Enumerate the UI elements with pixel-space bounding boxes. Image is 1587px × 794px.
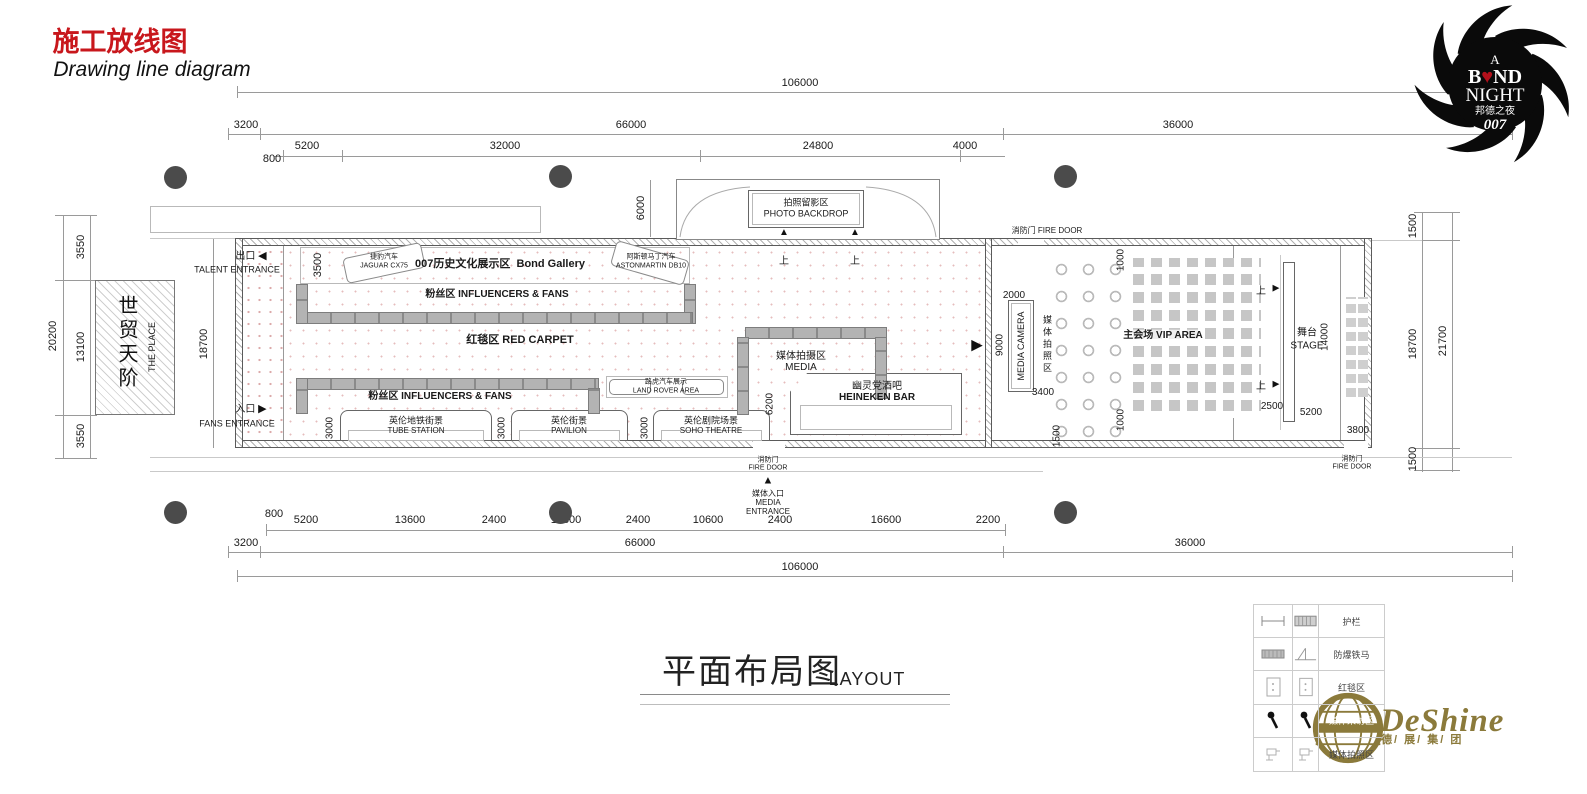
dim-line (63, 215, 64, 458)
legend-icon-camera-1 (1254, 738, 1293, 771)
dim-tick (1512, 570, 1513, 582)
pavilion-label-cn: 英伦街景 (551, 415, 587, 426)
dim-top-5200: 5200 (295, 140, 319, 154)
fans-label-cn: 粉丝区 (368, 391, 398, 402)
bond-gallery-label-cn: 007历史文化展示区 (415, 258, 510, 270)
dim-top-total: 106000 (782, 77, 819, 91)
dim-tick (55, 215, 97, 216)
media-camera-label-en: MEDIA CAMERA (1016, 311, 1026, 380)
dim-bot-5200: 5200 (294, 514, 318, 528)
land-rover-label-en: LAND ROVER AREA (633, 387, 699, 394)
dim-tick (237, 86, 238, 98)
dim-right-21700: 21700 (1437, 326, 1449, 357)
dim-bot-16600: 16600 (871, 514, 902, 528)
dim-3000: 3000 (640, 417, 651, 439)
column-dot (164, 166, 187, 189)
page-title-cn: 施工放线图 (53, 26, 188, 60)
dim-bot-total: 106000 (782, 561, 819, 575)
legend-label-red-carpet: 红毯区 (1319, 671, 1384, 704)
bond-night-logo: A B♥ND NIGHT 邦德之夜 007 (1393, 0, 1587, 185)
dim-bot-2400: 2400 (482, 514, 506, 528)
photo-backdrop-label-en: PHOTO BACKDROP (764, 208, 849, 219)
media-entrance-gap (753, 441, 785, 448)
dim-top-66000: 66000 (616, 119, 647, 133)
barrier (588, 388, 600, 414)
dim-tick (1005, 524, 1006, 536)
fans-entry-label-cn: 入口 ▶ (235, 404, 266, 417)
dim-tick (260, 546, 261, 558)
fire-door-bottom-label-en: FIRE DOOR (749, 465, 788, 474)
dim-tick (266, 524, 267, 536)
dim-9000: 9000 (995, 334, 1006, 356)
dim-line (228, 552, 1512, 553)
legend-icon-barricade-elev (1293, 638, 1319, 671)
fire-door-gap (1344, 441, 1368, 448)
page-title-en: Drawing line diagram (53, 57, 250, 83)
barrier (307, 378, 599, 390)
legend-icon-camera-2 (1293, 738, 1319, 771)
barrier (737, 337, 749, 415)
dim-3800: 3800 (1347, 425, 1369, 438)
jaguar-label-cn: 捷豹汽车 (370, 253, 398, 260)
land-rover-label: 路虎汽车展示 LAND ROVER AREA (633, 378, 699, 396)
drawing-canvas: 施工放线图 Drawing line diagram A B♥ND NIGHT … (0, 0, 1587, 794)
dim-3000: 3000 (325, 417, 336, 439)
dim-line (237, 92, 1512, 93)
dim-5200: 5200 (1300, 407, 1322, 420)
dim-top-3200: 3200 (234, 119, 258, 133)
barrier (307, 312, 693, 324)
logo-cn: 邦德之夜 (1475, 104, 1515, 117)
bond-gallery-label: 007历史文化展示区 Bond Gallery (415, 258, 585, 272)
mall-outline-top (150, 206, 541, 233)
red-carpet-label: 红毯区 RED CARPET (466, 334, 574, 348)
up-arrow-icon: ▲ (779, 228, 789, 238)
legend-icon-rail-elev (1293, 605, 1319, 638)
dim-3500: 3500 (312, 253, 324, 277)
column-dot (164, 501, 187, 524)
dim-top-32000: 32000 (490, 140, 521, 154)
up-arrow-icon: ▲ (850, 228, 860, 238)
brand-cn: 德/ 展/ 集/ 团 (1381, 731, 1463, 747)
stair-up-label: 上 (850, 256, 860, 269)
media-entrance-arrow-icon: ▲ (763, 476, 774, 487)
dim-bot-800: 800 (265, 508, 283, 522)
logo-night: NIGHT (1465, 85, 1524, 106)
dim-right-18700: 18700 (1407, 329, 1419, 360)
legend-icon-mic-2 (1293, 705, 1319, 738)
mall-line (150, 238, 235, 239)
dim-1500: 1500 (1052, 425, 1063, 447)
fans-entry-label-en: FANS ENTRANCE (199, 418, 275, 429)
dim-bot-3200: 3200 (234, 537, 258, 551)
stage-label-cn: 舞台 (1297, 328, 1317, 339)
legend-icon-rail-plan (1254, 605, 1293, 638)
plan-partition-stage-right (1340, 246, 1341, 440)
layout-title-en: LAYOUT (829, 668, 906, 691)
legend-label-media-photo: 媒体拍照区 (1319, 738, 1384, 771)
dim-tick (283, 150, 284, 162)
vip-label-cn: 主会场 (1123, 330, 1153, 341)
column-dot (1054, 501, 1077, 524)
fire-door-label-cn: 消防门 (1012, 226, 1036, 235)
dim-3400: 3400 (1032, 387, 1054, 400)
mall-line (150, 457, 1512, 458)
title-rule (640, 704, 950, 705)
jaguar-label: 捷豹汽车 JAGUAR CX75 (360, 253, 408, 271)
legend-icon-barricade-plan (1254, 638, 1293, 671)
dim-tick (1512, 546, 1513, 558)
dim-2500: 2500 (1261, 401, 1283, 414)
heineken-label-en: HEINEKEN BAR (839, 392, 915, 405)
dim-tick (700, 150, 701, 162)
dim-top-24800: 24800 (803, 140, 834, 154)
tube-station-label-cn: 英伦地铁街景 (389, 415, 443, 426)
legend-icon-carpet-2 (1293, 671, 1319, 704)
stair-up-label: 上 (779, 256, 789, 269)
dim-tick (55, 415, 97, 416)
dim-left-3550-top: 3550 (75, 235, 87, 259)
dim-top-800: 800 (263, 153, 281, 167)
fans-entry-cn: 入口 (235, 404, 255, 415)
dim-left-13100: 13100 (75, 332, 87, 363)
land-rover-label-cn: 路虎汽车展示 (645, 378, 687, 385)
aston-label: 阿斯顿马丁汽车 ASTONMARTIN DB10 (616, 253, 686, 271)
talent-exit-cn: 出口 (235, 251, 255, 262)
dim-2000: 2000 (1003, 290, 1025, 303)
media-zone-label-en: MEDIA (785, 362, 817, 375)
column-dot (549, 165, 572, 188)
flow-right-arrow-icon: ▶ (971, 338, 983, 353)
dim-top-4000: 4000 (953, 140, 977, 154)
red-carpet-label-cn: 红毯区 (466, 334, 499, 346)
dim-tick (342, 150, 343, 162)
photo-backdrop-label-cn: 拍照留影区 (783, 197, 828, 208)
plan-wall-bottom (235, 440, 1372, 448)
dim-top-36000: 36000 (1163, 119, 1194, 133)
dim-tick (228, 128, 229, 140)
bond-gallery-label-en: Bond Gallery (517, 258, 585, 270)
plan-partition-center (985, 238, 992, 448)
barrier (296, 378, 308, 414)
dim-line (237, 576, 1512, 577)
dim-tick (260, 128, 261, 140)
barrier (745, 327, 887, 339)
the-place-label-cn: 世贸天阶 (112, 295, 141, 391)
fans-label-en: INFLUENCERS & FANS (458, 289, 569, 300)
dim-bot-10600b: 10600 (693, 514, 724, 528)
backstage-seat-column (1358, 297, 1368, 397)
media-camera-label-cn: 媒体拍照区 (1041, 315, 1054, 375)
column-dot (1054, 165, 1077, 188)
dim-left-3550-bot: 3550 (75, 424, 87, 448)
jaguar-label-en: JAGUAR CX75 (360, 262, 408, 269)
dim-line (650, 180, 651, 237)
stair-up-label: 上 (1256, 286, 1266, 299)
dim-1000: 1000 (1116, 409, 1127, 431)
vip-label-en: VIP AREA (1156, 330, 1203, 341)
dim-right-1500-bot: 1500 (1407, 447, 1419, 471)
dim-line (266, 530, 1005, 531)
dim-bot-66000: 66000 (625, 537, 656, 551)
aston-label-cn: 阿斯顿马丁汽车 (627, 253, 676, 260)
dim-tick (55, 458, 97, 459)
dim-6200: 6200 (765, 393, 776, 415)
soho-theatre-label-cn: 英伦剧院场景 (684, 415, 738, 426)
stair-up-label: 上 (1256, 381, 1266, 394)
fire-door-top-label: 消防门 FIRE DOOR (1012, 226, 1083, 236)
dim-tick (237, 570, 238, 582)
dim-left-18700: 18700 (198, 329, 210, 360)
stage-step-arrow-icon: ▶ (1273, 380, 1280, 389)
title-rule (640, 694, 950, 695)
dim-bot-2400c: 2400 (768, 514, 792, 528)
exit-left-arrow-icon: ◀ (258, 250, 266, 262)
dim-tick (1414, 448, 1460, 449)
pavilion-label-en: PAVILION (551, 426, 587, 436)
dim-tick (1003, 546, 1004, 558)
dim-tick (1003, 128, 1004, 140)
dim-1000: 1000 (1116, 249, 1127, 271)
legend-table: 护栏 防爆铁马 红毯区 媒体采访区 媒体拍照区 (1253, 604, 1385, 772)
dim-line (1452, 212, 1453, 472)
legend-label-guardrail: 护栏 (1319, 605, 1384, 638)
dim-bot-2200: 2200 (976, 514, 1000, 528)
dim-left-20200: 20200 (47, 321, 59, 352)
fans-bottom-label: 粉丝区 INFLUENCERS & FANS (368, 391, 511, 404)
logo-007: 007 (1484, 117, 1507, 133)
dim-line (228, 134, 1512, 135)
legend-label-barricade: 防爆铁马 (1319, 638, 1384, 671)
dim-tick (1414, 212, 1460, 213)
legend-icon-carpet-1 (1254, 671, 1293, 704)
fire-door-label-en: FIRE DOOR (1038, 226, 1082, 235)
stage-step-arrow-icon: ▶ (1273, 284, 1280, 293)
dim-tick (1414, 470, 1460, 471)
aston-label-en: ASTONMARTIN DB10 (616, 262, 686, 269)
dim-bot-13600: 13600 (395, 514, 426, 528)
fire-door-gap (1018, 239, 1044, 245)
dim-3000: 3000 (497, 417, 508, 439)
column-dot (549, 501, 572, 524)
legend-icon-mic-1 (1254, 705, 1293, 738)
talent-exit-label-cn: 出口 ◀ (235, 251, 266, 264)
entry-right-arrow-icon: ▶ (258, 403, 266, 415)
backstage-seat-column (1346, 297, 1356, 397)
dim-14000: 14000 (1320, 323, 1331, 351)
vip-area-label: 主会场 VIP AREA (1123, 330, 1202, 343)
dim-right-1500-top: 1500 (1407, 214, 1419, 238)
tube-station-label-en: TUBE STATION (387, 426, 444, 436)
the-place-label-en: THE PLACE (147, 322, 157, 372)
mall-line (1372, 240, 1422, 241)
mall-line (150, 471, 1043, 472)
fans-label-cn: 粉丝区 (425, 289, 455, 300)
dim-6000: 6000 (635, 196, 647, 220)
dim-line (274, 156, 1005, 157)
dim-bot-2400b: 2400 (626, 514, 650, 528)
dim-bot-36000: 36000 (1175, 537, 1206, 551)
soho-theatre-label-en: SOHO THEATRE (680, 426, 742, 436)
red-carpet-label-en: RED CARPET (502, 334, 574, 346)
talent-exit-label-en: TALENT ENTRANCE (194, 264, 280, 275)
logo-letter-a: A (1490, 52, 1500, 67)
fans-top-label: 粉丝区 INFLUENCERS & FANS (425, 289, 568, 302)
dim-line (90, 215, 91, 458)
dim-line (1422, 212, 1423, 472)
dim-tick (228, 546, 229, 558)
legend-label-interview: 媒体采访区 (1319, 705, 1384, 738)
layout-title-cn: 平面布局图 (662, 651, 842, 694)
fire-door-br-label-en: FIRE DOOR (1333, 464, 1372, 473)
heineken-bar-inner (800, 405, 952, 430)
dim-tick (55, 280, 97, 281)
fans-label-en: INFLUENCERS & FANS (401, 391, 512, 402)
